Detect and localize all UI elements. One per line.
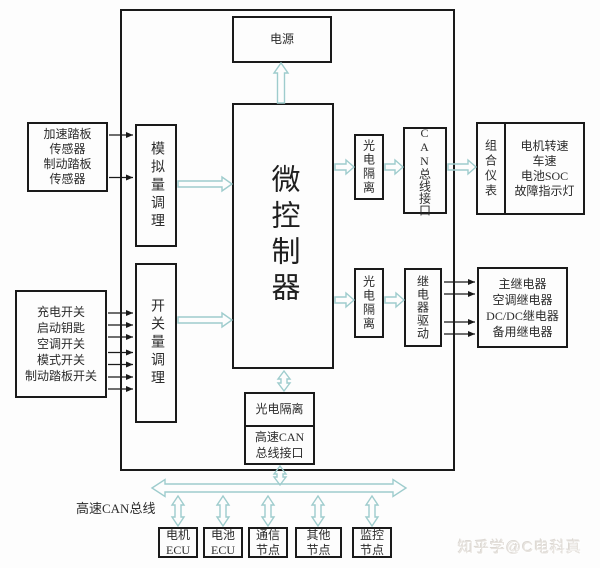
battery-ecu-label: 电池 ECU — [211, 528, 235, 558]
hs-can-interface-box: 高速CAN 总线接口 — [244, 425, 315, 465]
comm-node-label: 通信 节点 — [256, 528, 280, 558]
opto-isolation-mid-box: 光电隔离 — [354, 268, 384, 338]
diagram-canvas: 电源 微控制器 模拟量调理 开关量调理 加速踏板 传感器 制动踏板 传感器 充电… — [0, 0, 600, 568]
switch-conditioning-label: 开关量调理 — [146, 298, 166, 388]
mcu-label: 微控制器 — [262, 164, 304, 308]
analog-conditioning-box: 模拟量调理 — [135, 124, 177, 247]
motor-ecu-label: 电机 ECU — [166, 528, 190, 558]
relay-driver-label: 继电器驱动 — [415, 275, 432, 340]
relays-box: 主继电器 空调继电器 DC/DC继电器 备用继电器 — [477, 267, 568, 348]
relays-label: 主继电器 空调继电器 DC/DC继电器 备用继电器 — [486, 276, 559, 340]
relay-driver-box: 继电器驱动 — [404, 268, 442, 347]
battery-ecu-box: 电池 ECU — [203, 527, 243, 558]
cluster-side-panel: 组合仪表 — [478, 124, 506, 213]
arrow-bus-monitor-node — [366, 496, 378, 526]
hs-can-bus-label: 高速CAN总线 — [76, 498, 155, 517]
pedal-sensors-box: 加速踏板 传感器 制动踏板 传感器 — [27, 122, 108, 192]
monitor-node-box: 监控 节点 — [352, 527, 392, 558]
hs-can-interface-label: 高速CAN 总线接口 — [255, 429, 304, 461]
opto-isolation-bottom-label: 光电隔离 — [255, 402, 303, 417]
arrow-bus-other-node — [312, 496, 324, 526]
cluster-readouts: 电机转速 车速 电池SOC 故障指示灯 — [506, 124, 583, 213]
hs-can-bus-arrow — [152, 480, 406, 497]
comm-node-box: 通信 节点 — [248, 527, 288, 558]
opto-isolation-mid-label: 光电隔离 — [361, 275, 378, 331]
arrow-bus-motor-ecu — [172, 496, 184, 526]
can-interface-label: CAN总线接口 — [417, 126, 434, 216]
opto-isolation-top-box: 光电隔离 — [354, 134, 384, 200]
power-label: 电源 — [270, 32, 294, 47]
cluster-side-label: 组合仪表 — [483, 139, 500, 199]
instrument-cluster-box: 组合仪表 电机转速 车速 电池SOC 故障指示灯 — [476, 122, 585, 215]
pedal-sensors-label: 加速踏板 传感器 制动踏板 传感器 — [43, 127, 91, 187]
arrow-bus-comm-node — [262, 496, 274, 526]
power-box: 电源 — [232, 16, 332, 63]
other-node-label: 其他 节点 — [306, 528, 330, 558]
arrow-bus-battery-ecu — [217, 496, 229, 526]
switch-conditioning-box: 开关量调理 — [135, 263, 177, 423]
opto-isolation-bottom-box: 光电隔离 — [244, 392, 315, 427]
analog-conditioning-label: 模拟量调理 — [146, 141, 166, 231]
other-node-box: 其他 节点 — [295, 527, 342, 558]
switch-inputs-label: 充电开关 启动钥匙 空调开关 模式开关 制动踏板开关 — [25, 304, 97, 384]
mcu-box: 微控制器 — [232, 103, 334, 369]
can-interface-box: CAN总线接口 — [403, 127, 447, 214]
monitor-node-label: 监控 节点 — [360, 528, 384, 558]
motor-ecu-box: 电机 ECU — [158, 527, 198, 558]
switch-inputs-box: 充电开关 启动钥匙 空调开关 模式开关 制动踏板开关 — [15, 290, 107, 398]
watermark-text: 知乎学@C电科真 — [458, 536, 582, 557]
opto-isolation-top-label: 光电隔离 — [361, 139, 378, 195]
